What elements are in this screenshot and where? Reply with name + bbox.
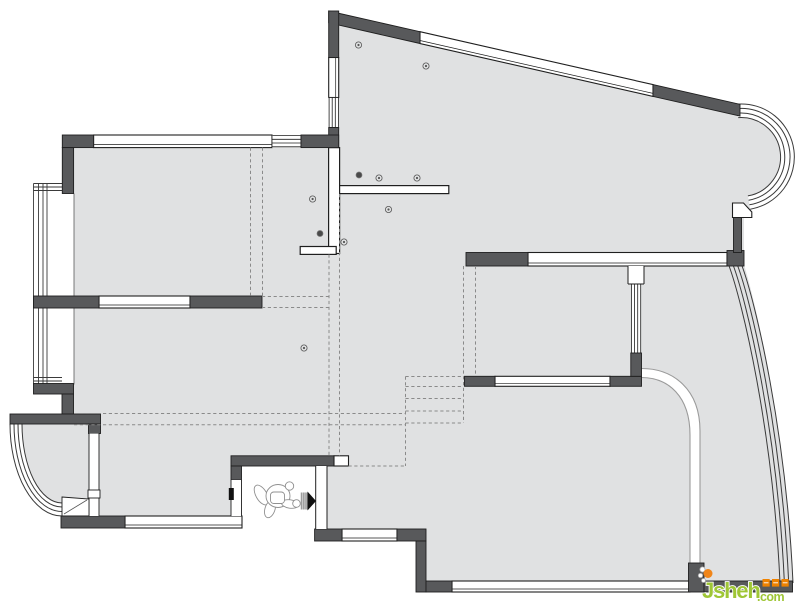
svg-text:.com: .com	[757, 590, 785, 602]
svg-text:Jsheh: Jsheh	[702, 578, 760, 602]
